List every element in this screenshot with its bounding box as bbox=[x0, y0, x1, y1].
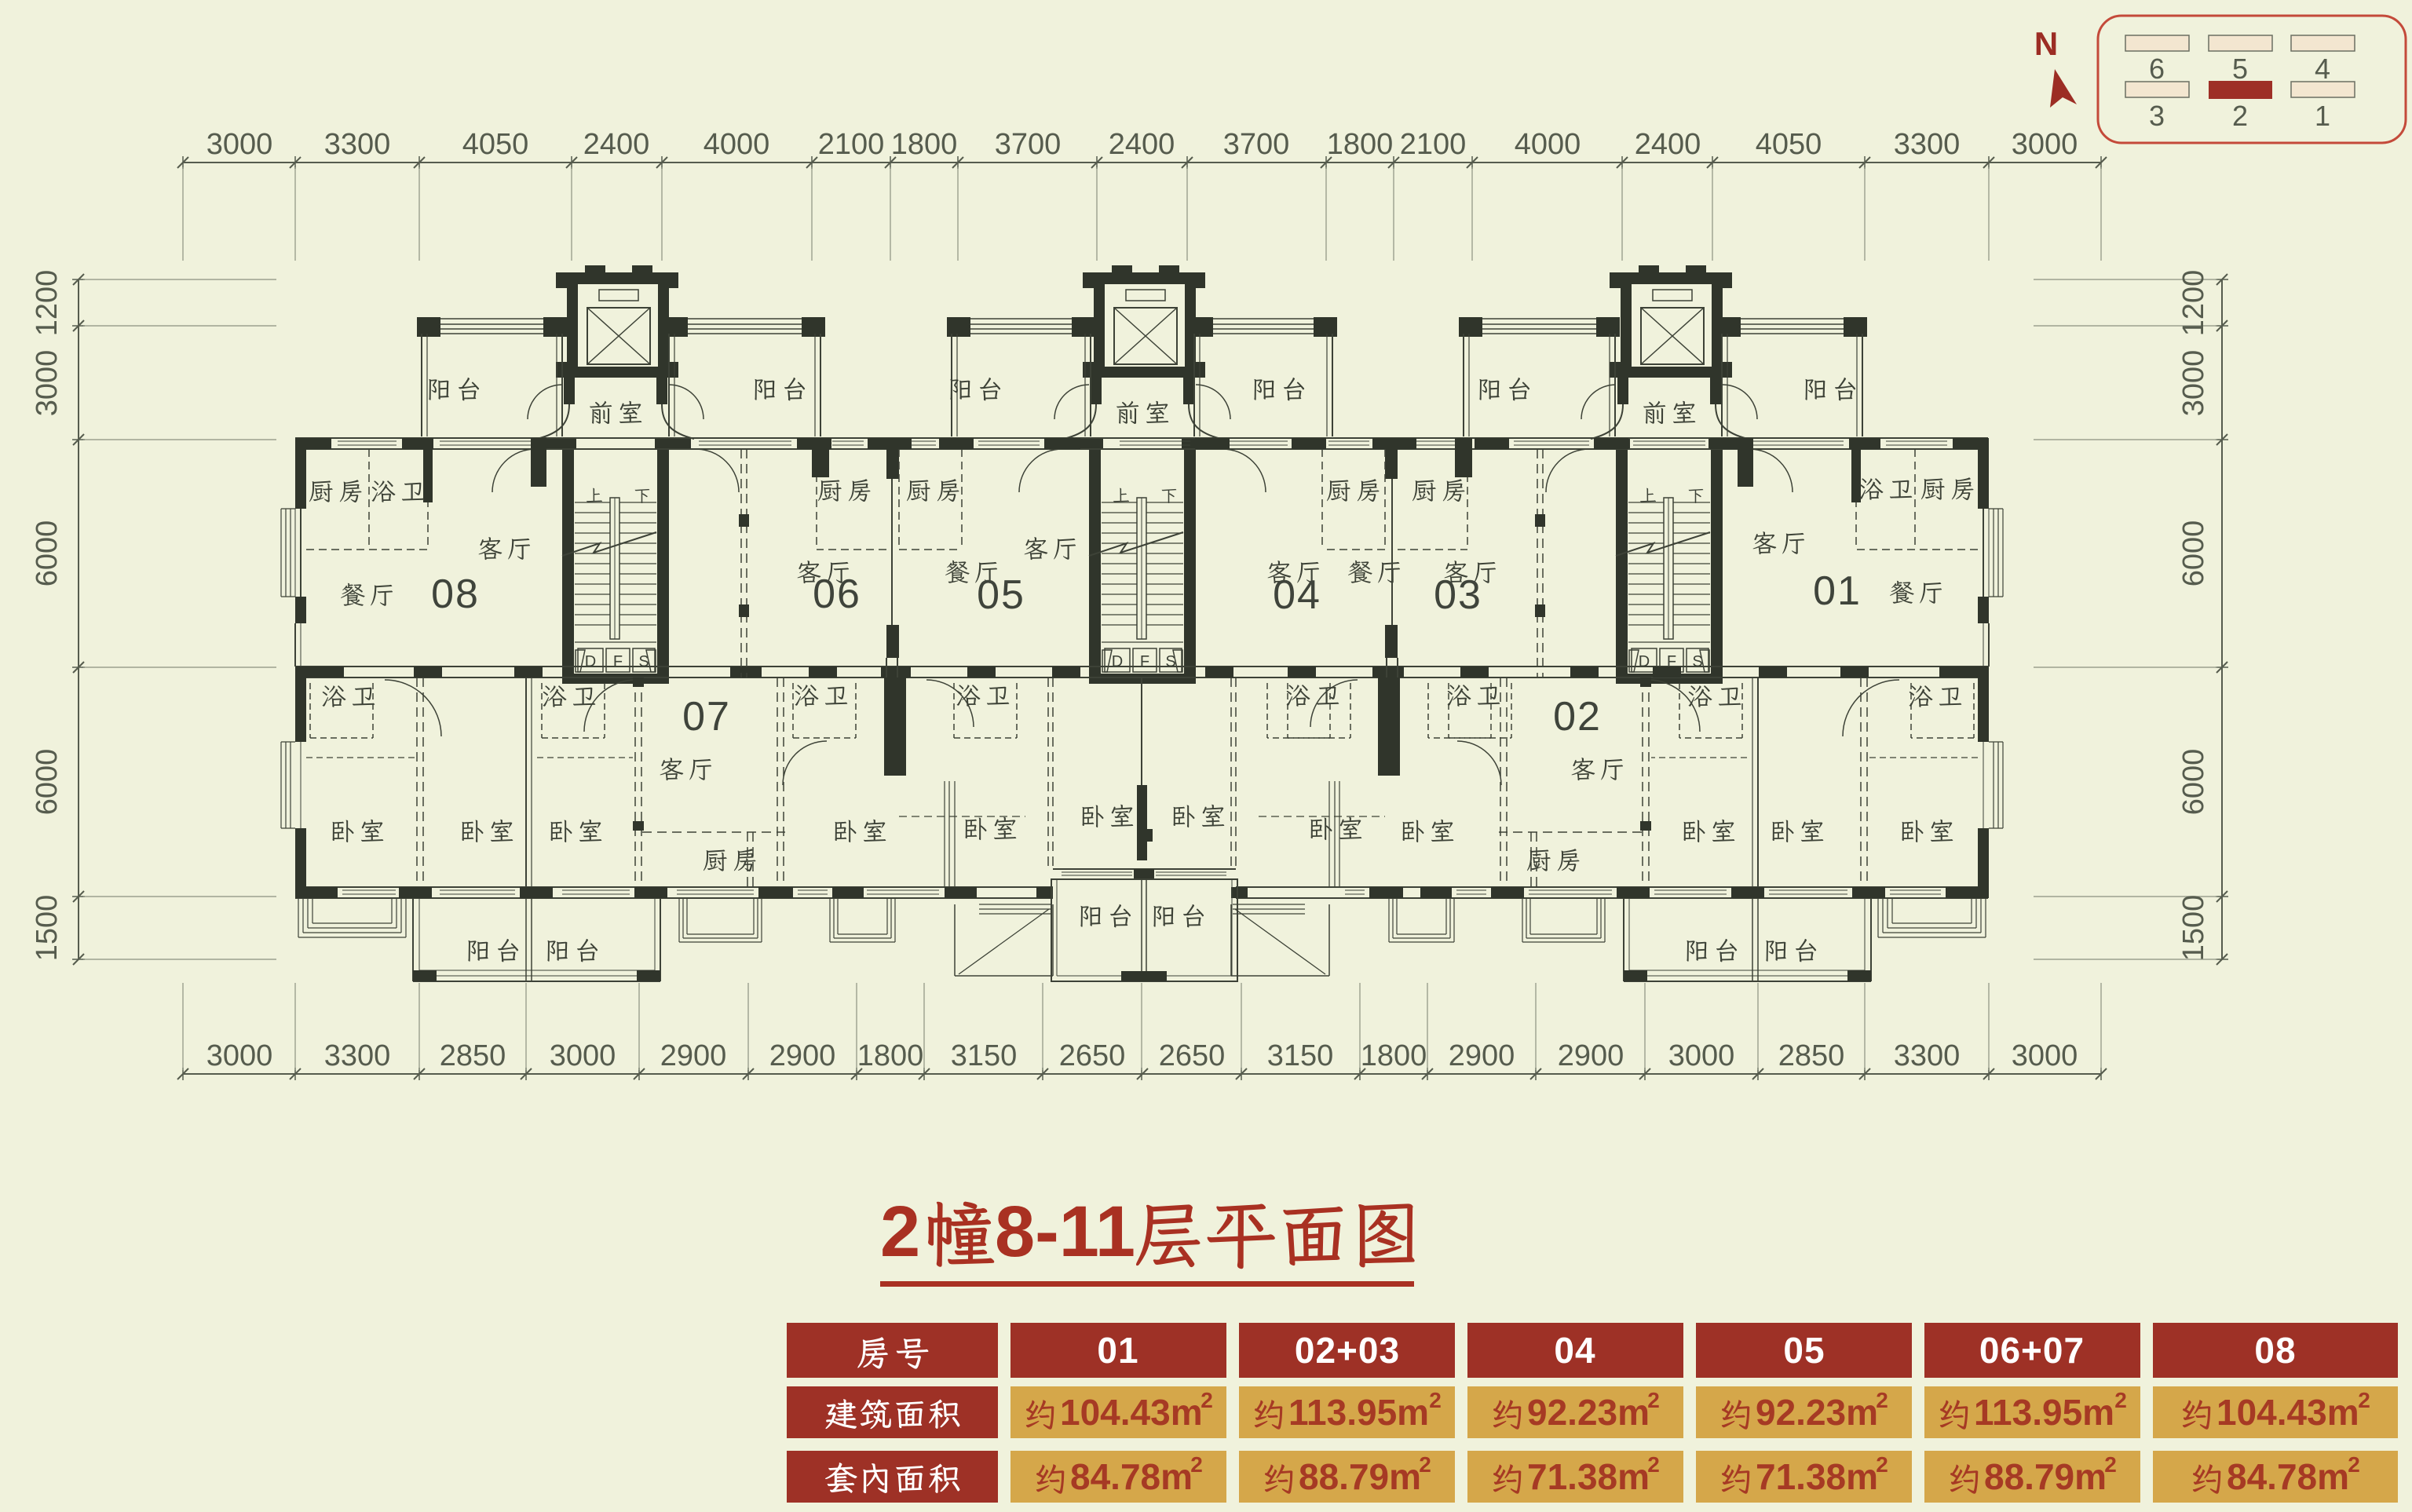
svg-text:1500: 1500 bbox=[31, 895, 64, 962]
svg-text:05: 05 bbox=[1783, 1330, 1825, 1371]
svg-text:113.95m: 113.95m bbox=[1288, 1392, 1429, 1433]
svg-text:06: 06 bbox=[813, 572, 861, 617]
svg-text:2100: 2100 bbox=[818, 128, 885, 161]
svg-text:1500: 1500 bbox=[2177, 895, 2210, 962]
svg-text:2: 2 bbox=[1190, 1452, 1203, 1477]
svg-text:06+07: 06+07 bbox=[1979, 1330, 2085, 1371]
svg-text:3150: 3150 bbox=[951, 1039, 1018, 1072]
svg-text:92.23m: 92.23m bbox=[1756, 1392, 1878, 1433]
svg-text:3000: 3000 bbox=[550, 1039, 616, 1072]
svg-text:8-11: 8-11 bbox=[995, 1192, 1135, 1272]
svg-text:2850: 2850 bbox=[1778, 1039, 1845, 1072]
svg-text:71.38m: 71.38m bbox=[1756, 1456, 1878, 1497]
svg-text:1200: 1200 bbox=[31, 270, 64, 337]
svg-text:6000: 6000 bbox=[2177, 749, 2210, 816]
svg-text:104.43m: 104.43m bbox=[1060, 1392, 1203, 1433]
svg-text:2: 2 bbox=[1876, 1452, 1888, 1477]
svg-text:6000: 6000 bbox=[31, 520, 64, 587]
svg-text:D: D bbox=[585, 653, 596, 670]
svg-text:4050: 4050 bbox=[1756, 128, 1822, 161]
svg-text:104.43m: 104.43m bbox=[2216, 1392, 2359, 1433]
svg-text:2: 2 bbox=[880, 1192, 920, 1272]
svg-text:3000: 3000 bbox=[1668, 1039, 1735, 1072]
svg-text:4: 4 bbox=[2315, 53, 2330, 85]
svg-text:2: 2 bbox=[1201, 1388, 1213, 1412]
svg-text:2900: 2900 bbox=[660, 1039, 727, 1072]
svg-text:88.79m: 88.79m bbox=[1299, 1456, 1421, 1497]
svg-text:2: 2 bbox=[1429, 1388, 1442, 1412]
svg-text:2400: 2400 bbox=[583, 128, 650, 161]
svg-text:3000: 3000 bbox=[2177, 350, 2210, 417]
svg-text:3150: 3150 bbox=[1267, 1039, 1334, 1072]
svg-text:3300: 3300 bbox=[1894, 1039, 1961, 1072]
svg-text:1800: 1800 bbox=[857, 1039, 924, 1072]
svg-text:2900: 2900 bbox=[1558, 1039, 1624, 1072]
svg-text:1800: 1800 bbox=[1361, 1039, 1427, 1072]
svg-text:S: S bbox=[1165, 653, 1175, 670]
svg-text:07: 07 bbox=[682, 694, 731, 740]
svg-text:2: 2 bbox=[2104, 1452, 2117, 1477]
svg-text:3: 3 bbox=[2149, 100, 2165, 132]
svg-text:3700: 3700 bbox=[1223, 128, 1290, 161]
svg-text:84.78m: 84.78m bbox=[2227, 1456, 2349, 1497]
svg-text:F: F bbox=[613, 653, 623, 670]
svg-text:2400: 2400 bbox=[1635, 128, 1701, 161]
svg-text:04: 04 bbox=[1554, 1330, 1595, 1371]
svg-text:2100: 2100 bbox=[1400, 128, 1467, 161]
svg-text:05: 05 bbox=[977, 572, 1025, 618]
svg-text:D: D bbox=[1112, 653, 1123, 670]
svg-text:N: N bbox=[2034, 25, 2058, 62]
svg-text:01: 01 bbox=[1813, 568, 1862, 614]
svg-text:08: 08 bbox=[431, 572, 480, 617]
svg-text:3000: 3000 bbox=[206, 1039, 273, 1072]
svg-text:2: 2 bbox=[2348, 1452, 2360, 1477]
svg-text:4000: 4000 bbox=[703, 128, 770, 161]
svg-text:3700: 3700 bbox=[995, 128, 1062, 161]
svg-text:02: 02 bbox=[1553, 694, 1602, 740]
svg-text:S: S bbox=[638, 653, 649, 670]
svg-text:04: 04 bbox=[1273, 572, 1321, 618]
svg-text:1: 1 bbox=[2315, 100, 2330, 132]
svg-text:2: 2 bbox=[2358, 1388, 2370, 1412]
svg-text:2900: 2900 bbox=[1449, 1039, 1515, 1072]
svg-text:6000: 6000 bbox=[31, 749, 64, 816]
svg-text:84.78m: 84.78m bbox=[1070, 1456, 1193, 1497]
svg-text:2900: 2900 bbox=[769, 1039, 836, 1072]
svg-text:2: 2 bbox=[1647, 1388, 1660, 1412]
svg-text:92.23m: 92.23m bbox=[1527, 1392, 1650, 1433]
svg-text:3000: 3000 bbox=[206, 128, 273, 161]
svg-text:F: F bbox=[1140, 653, 1149, 670]
svg-text:2650: 2650 bbox=[1059, 1039, 1126, 1072]
svg-text:3300: 3300 bbox=[324, 1039, 391, 1072]
svg-text:2: 2 bbox=[2114, 1388, 2127, 1412]
svg-text:3300: 3300 bbox=[324, 128, 391, 161]
svg-text:5: 5 bbox=[2232, 53, 2248, 85]
svg-text:2: 2 bbox=[1876, 1388, 1888, 1412]
svg-text:1200: 1200 bbox=[2177, 270, 2210, 337]
svg-text:3000: 3000 bbox=[31, 350, 64, 417]
svg-text:2: 2 bbox=[1419, 1452, 1431, 1477]
svg-text:S: S bbox=[1692, 653, 1702, 670]
svg-text:1800: 1800 bbox=[891, 128, 958, 161]
svg-text:2: 2 bbox=[1647, 1452, 1660, 1477]
svg-text:2650: 2650 bbox=[1159, 1039, 1226, 1072]
svg-text:71.38m: 71.38m bbox=[1527, 1456, 1650, 1497]
svg-text:F: F bbox=[1667, 653, 1676, 670]
svg-text:3000: 3000 bbox=[2012, 1039, 2078, 1072]
svg-text:6: 6 bbox=[2149, 53, 2165, 85]
svg-text:2400: 2400 bbox=[1109, 128, 1175, 161]
svg-text:2: 2 bbox=[2232, 100, 2248, 132]
svg-text:02+03: 02+03 bbox=[1295, 1330, 1400, 1371]
svg-text:4050: 4050 bbox=[462, 128, 529, 161]
svg-text:1800: 1800 bbox=[1327, 128, 1394, 161]
svg-text:2850: 2850 bbox=[440, 1039, 506, 1072]
svg-text:88.79m: 88.79m bbox=[1984, 1456, 2107, 1497]
svg-text:6000: 6000 bbox=[2177, 520, 2210, 587]
svg-text:01: 01 bbox=[1097, 1330, 1138, 1371]
svg-text:D: D bbox=[1639, 653, 1650, 670]
svg-text:08: 08 bbox=[2254, 1330, 2296, 1371]
svg-text:03: 03 bbox=[1434, 572, 1482, 618]
svg-text:4000: 4000 bbox=[1515, 128, 1581, 161]
svg-text:3000: 3000 bbox=[2012, 128, 2078, 161]
svg-text:113.95m: 113.95m bbox=[1974, 1392, 2114, 1433]
svg-text:3300: 3300 bbox=[1894, 128, 1961, 161]
